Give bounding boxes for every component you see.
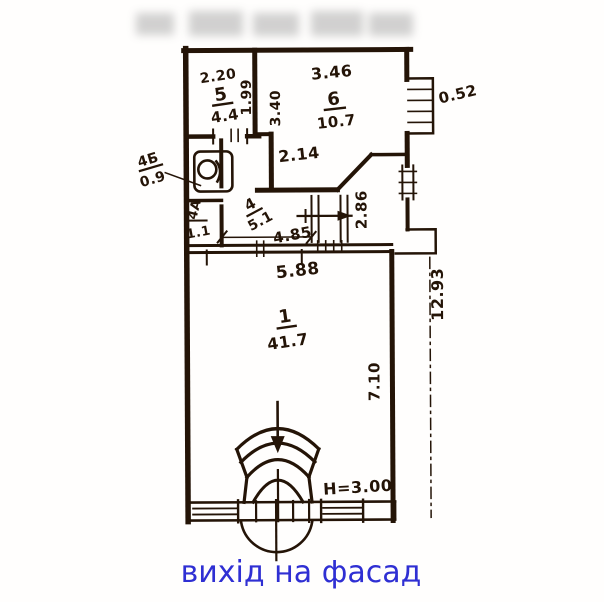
facade-wall [189, 500, 395, 523]
room1-depth-dim: 7.10 [365, 362, 383, 401]
facade-ledge-dim: 0.52 [437, 81, 479, 107]
room1-number: 1 [277, 305, 293, 328]
building-depth-dim: 12.93 [428, 268, 447, 321]
room5-label: 2.20 5 4.4 [199, 66, 243, 128]
passage-door-arrow [298, 210, 352, 222]
fan-staircase [237, 402, 320, 502]
facade-ledge-window [407, 78, 433, 133]
facade-window-right [323, 508, 363, 514]
room4a-label: 4А 1.1 [185, 198, 212, 243]
chamfer-wall [337, 155, 371, 190]
room4-label: 4 5.1 [235, 190, 276, 235]
room4a-area: 1.1 [185, 223, 212, 242]
room1-width-dim: 5.88 [275, 259, 321, 284]
floor-plan-scan: 2.20 5 4.4 1.99 3.46 6 10.7 3.40 0.52 4Б… [0, 0, 604, 602]
room1-label: 1 41.7 [262, 303, 310, 354]
room1-area: 41.7 [266, 329, 310, 354]
exit-to-facade-caption: вихід на фасад [181, 555, 422, 590]
room6-label: 6 10.7 [313, 87, 356, 133]
door-threshold [231, 129, 238, 141]
room6-area: 10.7 [316, 111, 357, 133]
right-wall-window [399, 165, 416, 199]
room5-area: 4.4 [210, 105, 240, 127]
room5-side-dim: 1.99 [239, 79, 255, 116]
room4b-label: 4Б 0.9 [132, 149, 167, 191]
room6-width-dim: 3.46 [310, 61, 353, 84]
redacted-text-blur [136, 11, 413, 36]
facade-window-left [193, 508, 236, 514]
floor-plan-drawing: 2.20 5 4.4 1.99 3.46 6 10.7 3.40 0.52 4Б… [0, 0, 604, 602]
wall-step [396, 229, 436, 253]
ceiling-height-dim: H=3.00 [323, 476, 393, 499]
room6-side-dim: 3.40 [268, 90, 284, 127]
room4b-area: 0.9 [138, 168, 168, 191]
entrance-door-swing [241, 500, 312, 560]
mid-wall-dim: 2.14 [277, 143, 320, 166]
right-niche-dim: 2.86 [352, 190, 370, 229]
